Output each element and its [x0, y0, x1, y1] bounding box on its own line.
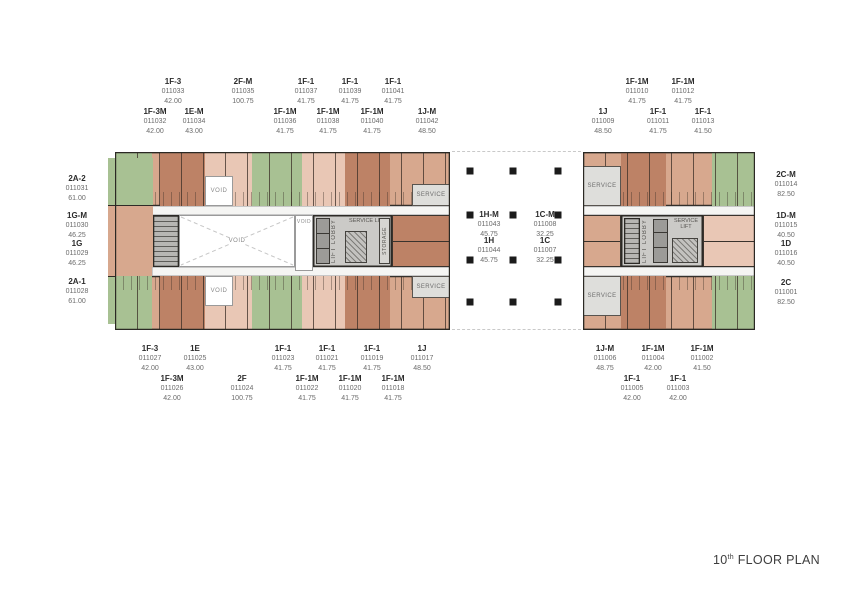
unit-type: 1E — [184, 344, 207, 354]
unit-block — [160, 152, 205, 206]
unit-area: 41.75 — [647, 127, 669, 137]
unit-number: 011008 — [534, 220, 557, 230]
unit-label-1j: 1J01100948.50 — [592, 107, 615, 137]
unit-area: 40.50 — [775, 259, 798, 269]
unit-area: 32.25 — [534, 256, 557, 266]
unit-type: 1F-1M — [641, 344, 664, 354]
unit-number: 011034 — [183, 117, 206, 127]
unit-number: 011004 — [641, 354, 664, 364]
unit-type: 2C — [775, 278, 798, 288]
unit-type: 1F-1M — [671, 77, 694, 87]
unit-number: 011011 — [647, 117, 669, 127]
unit-type: 1F-1M — [625, 77, 648, 87]
unit-number: 011035 — [232, 87, 255, 97]
unit-area: 41.50 — [692, 127, 715, 137]
void-room: VOID — [205, 176, 233, 206]
unit-area: 41.75 — [295, 394, 318, 404]
unit-label-1f-1m: 1F-1M01100241.50 — [690, 344, 713, 374]
left-wing-stair — [153, 215, 179, 267]
service-lift-label: SERVICE LIFT — [670, 218, 702, 230]
unit-number: 011010 — [625, 87, 648, 97]
unit-label-1f-3m: 1F-3M01102642.00 — [160, 374, 183, 404]
lift-shafts — [653, 219, 668, 263]
unit-area: 42.00 — [621, 394, 644, 404]
unit-number: 011023 — [272, 354, 295, 364]
unit-type: 1F-1 — [295, 77, 318, 87]
unit-number: 011041 — [382, 87, 405, 97]
unit-block — [160, 276, 205, 330]
core-stair — [624, 218, 640, 264]
unit-label-2f: 2F011024100.75 — [231, 374, 254, 404]
unit-number: 011027 — [139, 354, 162, 364]
unit-type: 2C-M — [775, 170, 798, 180]
unit-number: 011043 — [478, 220, 501, 230]
unit-area: 41.50 — [690, 364, 713, 374]
unit-type: 1F-1M — [316, 107, 339, 117]
unit-type: 1J-M — [594, 344, 617, 354]
unit-label-1f-1m: 1F-1M01103841.75 — [316, 107, 339, 137]
unit-label-1f-1m: 1F-1M01104041.75 — [360, 107, 383, 137]
unit-type: 1F-1M — [690, 344, 713, 354]
unit-area: 41.75 — [361, 364, 384, 374]
unit-number: 011001 — [775, 288, 798, 298]
lift-lobby-label: LIFT LOBBY — [642, 217, 648, 265]
unit-label-1h: 1H01104445.75 — [478, 236, 501, 266]
unit-area: 42.00 — [162, 97, 185, 107]
unit-type: 1F-3M — [143, 107, 166, 117]
unit-area: 41.75 — [338, 394, 361, 404]
unit-number: 011025 — [184, 354, 207, 364]
unit-area: 41.75 — [625, 97, 648, 107]
unit-number: 011003 — [667, 384, 690, 394]
unit-block — [252, 152, 302, 206]
unit-type: 2A-2 — [66, 174, 89, 184]
unit-type: 1C-M — [534, 210, 557, 220]
unit-number: 011039 — [339, 87, 362, 97]
unit-number: 011026 — [160, 384, 183, 394]
unit-divider — [392, 241, 450, 242]
unit-divider — [703, 241, 755, 242]
unit-type: 1D-M — [775, 211, 798, 221]
void-label: VOID — [211, 288, 228, 294]
unit-number: 011028 — [66, 287, 89, 297]
unit-label-1j: 1J01101748.50 — [411, 344, 434, 374]
unit-number: 011033 — [162, 87, 185, 97]
unit-label-1f-1m: 1F-1M01102241.75 — [295, 374, 318, 404]
unit-type: 1F-1M — [381, 374, 404, 384]
courtyard-boundary — [452, 151, 581, 152]
unit-area: 42.00 — [139, 364, 162, 374]
unit-area: 41.75 — [381, 394, 404, 404]
unit-number: 011014 — [775, 180, 798, 190]
service-label: SERVICE — [587, 293, 616, 299]
unit-type: 2F — [231, 374, 254, 384]
storage-label: STORAGE — [382, 227, 388, 255]
unit-number: 011016 — [775, 249, 798, 259]
unit-number: 011024 — [231, 384, 254, 394]
unit-label-1f-1m: 1F-1M01101841.75 — [381, 374, 404, 404]
unit-area: 43.00 — [183, 127, 206, 137]
service-room: SERVICE — [412, 184, 450, 206]
void-room: VOID — [205, 276, 233, 306]
unit-area: 48.50 — [592, 127, 615, 137]
unit-area: 48.75 — [594, 364, 617, 374]
unit-block — [712, 276, 755, 330]
unit-label-1f-1: 1F-101103941.75 — [339, 77, 362, 107]
unit-type: 1H-M — [478, 210, 501, 220]
void-label: VOID — [297, 219, 311, 225]
unit-label-1e-m: 1E-M01103443.00 — [183, 107, 206, 137]
unit-number: 011021 — [316, 354, 339, 364]
unit-label-2c-m: 2C-M01101482.50 — [775, 170, 798, 200]
unit-type: 1F-3 — [139, 344, 162, 354]
right-wing-bottom-corridor — [583, 267, 755, 276]
unit-label-1f-1: 1F-101101941.75 — [361, 344, 384, 374]
unit-label-1f-1m: 1F-1M01101041.75 — [625, 77, 648, 107]
void-shaft: VOID — [295, 215, 313, 271]
unit-label-1d-m: 1D-M01101540.50 — [775, 211, 798, 241]
unit-type: 1F-1 — [272, 344, 295, 354]
unit-label-1e: 1E01102543.00 — [184, 344, 207, 374]
unit-label-1c: 1C01100732.25 — [534, 236, 557, 266]
unit-number: 011037 — [295, 87, 318, 97]
unit-number: 011032 — [143, 117, 166, 127]
unit-type: 1G-M — [66, 211, 89, 221]
unit-type: 1C — [534, 236, 557, 246]
courtyard-boundary — [452, 329, 581, 330]
unit-type: 1F-1M — [273, 107, 296, 117]
left-wing-top-corridor — [152, 206, 450, 215]
unit-type: 1F-1M — [360, 107, 383, 117]
unit-type: 1F-1 — [316, 344, 339, 354]
unit-label-1f-3: 1F-301103342.00 — [162, 77, 185, 107]
unit-area: 100.75 — [231, 394, 254, 404]
unit-area: 41.75 — [382, 97, 405, 107]
unit-number: 011020 — [338, 384, 361, 394]
unit-area: 42.00 — [160, 394, 183, 404]
unit-area: 82.50 — [775, 190, 798, 200]
unit-area: 46.25 — [66, 259, 89, 269]
unit-area: 48.50 — [411, 364, 434, 374]
unit-area: 41.75 — [295, 97, 318, 107]
unit-area: 41.75 — [273, 127, 296, 137]
lift-shafts — [316, 218, 330, 264]
unit-area: 61.00 — [66, 297, 89, 307]
unit-type: 1F-3 — [162, 77, 185, 87]
unit-type: 2F-M — [232, 77, 255, 87]
unit-number: 011017 — [411, 354, 434, 364]
right-wing-top-corridor — [583, 206, 755, 215]
unit-number: 011022 — [295, 384, 318, 394]
unit-area: 100.75 — [232, 97, 255, 107]
storage-room: STORAGE — [379, 218, 390, 264]
unit-number: 011002 — [690, 354, 713, 364]
unit-block — [345, 152, 390, 206]
unit-number: 011015 — [775, 221, 798, 231]
unit-area: 41.75 — [272, 364, 295, 374]
unit-area: 48.50 — [416, 127, 439, 137]
unit-type: 1F-1 — [382, 77, 405, 87]
service-room: SERVICE — [583, 276, 621, 316]
unit-label-1f-1: 1F-101101341.50 — [692, 107, 715, 137]
unit-label-1f-1: 1F-101104141.75 — [382, 77, 405, 107]
left-wing-core: LIFT LOBBY SERVICE LIFT STORAGE — [313, 215, 392, 267]
unit-type: 1G — [66, 239, 89, 249]
unit-label-1f-1: 1F-101103741.75 — [295, 77, 318, 107]
service-room: SERVICE — [412, 276, 450, 298]
unit-block — [302, 276, 345, 330]
unit-block — [345, 276, 390, 330]
unit-label-1f-1m: 1F-1M01103641.75 — [273, 107, 296, 137]
unit-label-1f-1: 1F-101100542.00 — [621, 374, 644, 404]
unit-block — [115, 276, 152, 330]
unit-label-1f-1: 1F-101100342.00 — [667, 374, 690, 404]
right-wing-core: LIFT LOBBY SERVICE LIFT — [621, 215, 703, 267]
unit-block — [621, 152, 666, 206]
column-marker — [510, 212, 517, 219]
column-marker — [510, 257, 517, 264]
column-marker — [467, 168, 474, 175]
unit-label-1g: 1G01102946.25 — [66, 239, 89, 269]
unit-area: 41.75 — [316, 364, 339, 374]
unit-number: 011018 — [381, 384, 404, 394]
unit-block — [252, 276, 302, 330]
unit-type: 1F-1 — [361, 344, 384, 354]
unit-block — [108, 205, 153, 277]
unit-type: 1E-M — [183, 107, 206, 117]
unit-type: 1J — [592, 107, 615, 117]
void-label: VOID — [227, 238, 248, 244]
service-label: SERVICE — [587, 183, 616, 189]
left-wing-top-units — [115, 152, 450, 206]
unit-label-1j-m: 1J-M01104248.50 — [416, 107, 439, 137]
unit-type: 1F-1M — [295, 374, 318, 384]
unit-type: 1F-1 — [647, 107, 669, 117]
unit-number: 011036 — [273, 117, 296, 127]
unit-label-2c: 2C01100182.50 — [775, 278, 798, 308]
unit-number: 011005 — [621, 384, 644, 394]
unit-type: 1D — [775, 239, 798, 249]
column-marker — [510, 168, 517, 175]
unit-number: 011030 — [66, 221, 89, 231]
plan-title-text: FLOOR PLAN — [734, 553, 820, 567]
unit-area: 41.75 — [339, 97, 362, 107]
column-marker — [467, 212, 474, 219]
unit-area: 41.75 — [360, 127, 383, 137]
unit-label-1f-1m: 1F-1M01101241.75 — [671, 77, 694, 107]
unit-area: 42.00 — [641, 364, 664, 374]
unit-divider — [583, 241, 621, 242]
unit-area: 61.00 — [66, 194, 89, 204]
mid-units — [583, 215, 621, 267]
service-label: SERVICE — [416, 192, 445, 198]
unit-label-1d: 1D01101640.50 — [775, 239, 798, 269]
unit-label-1f-3m: 1F-3M01103242.00 — [143, 107, 166, 137]
mid-units — [703, 215, 755, 267]
lift-lobby-label: LIFT LOBBY — [331, 217, 337, 265]
unit-area: 41.75 — [316, 127, 339, 137]
unit-type: 1H — [478, 236, 501, 246]
unit-number: 011038 — [316, 117, 339, 127]
unit-area: 82.50 — [775, 298, 798, 308]
unit-label-1f-1m: 1F-1M01100442.00 — [641, 344, 664, 374]
unit-number: 011013 — [692, 117, 715, 127]
unit-number: 011040 — [360, 117, 383, 127]
unit-area: 42.00 — [143, 127, 166, 137]
unit-label-1g-m: 1G-M01103046.25 — [66, 211, 89, 241]
plan-title: 10th FLOOR PLAN — [713, 553, 820, 567]
unit-block — [621, 276, 666, 330]
unit-number: 011007 — [534, 246, 557, 256]
unit-block — [108, 158, 153, 205]
unit-area: 45.75 — [478, 256, 501, 266]
unit-number: 011031 — [66, 184, 89, 194]
unit-type: 1F-3M — [160, 374, 183, 384]
column-marker — [467, 257, 474, 264]
unit-label-2a-1: 2A-101102861.00 — [66, 277, 89, 307]
unit-number: 011012 — [671, 87, 694, 97]
left-wing-bottom-units — [115, 276, 450, 330]
unit-label-1f-1: 1F-101101141.75 — [647, 107, 669, 137]
unit-type: 1F-1 — [621, 374, 644, 384]
unit-label-1f-1: 1F-101102341.75 — [272, 344, 295, 374]
unit-number: 011042 — [416, 117, 439, 127]
unit-area: 41.75 — [671, 97, 694, 107]
unit-label-1f-1m: 1F-1M01102041.75 — [338, 374, 361, 404]
column-marker — [467, 299, 474, 306]
unit-block — [302, 152, 345, 206]
unit-label-1f-3: 1F-301102742.00 — [139, 344, 162, 374]
unit-label-2f-m: 2F-M011035100.75 — [232, 77, 255, 107]
unit-type: 1J-M — [416, 107, 439, 117]
unit-type: 1F-1 — [667, 374, 690, 384]
service-label: SERVICE — [416, 284, 445, 290]
mid-units — [392, 215, 450, 267]
unit-label-1j-m: 1J-M01100648.75 — [594, 344, 617, 374]
service-room: SERVICE — [583, 166, 621, 206]
unit-label-1f-1: 1F-101102141.75 — [316, 344, 339, 374]
unit-number: 011044 — [478, 246, 501, 256]
unit-number: 011006 — [594, 354, 617, 364]
unit-area: 42.00 — [667, 394, 690, 404]
unit-type: 1J — [411, 344, 434, 354]
floor-plan-page: VOID VOID VOID LIFT LOBBY SERVICE LIFT S… — [0, 0, 861, 609]
unit-type: 1F-1 — [339, 77, 362, 87]
core-stair — [345, 231, 367, 263]
void-label: VOID — [211, 188, 228, 194]
floor-number: 10 — [713, 553, 728, 567]
core-stair — [672, 238, 698, 263]
column-marker — [555, 299, 562, 306]
unit-type: 1F-1M — [338, 374, 361, 384]
unit-type: 1F-1 — [692, 107, 715, 117]
unit-type: 2A-1 — [66, 277, 89, 287]
atrium-void: VOID — [179, 215, 295, 267]
column-marker — [510, 299, 517, 306]
column-marker — [555, 168, 562, 175]
unit-area: 43.00 — [184, 364, 207, 374]
unit-number: 011009 — [592, 117, 615, 127]
unit-number: 011029 — [66, 249, 89, 259]
unit-label-2a-2: 2A-201103161.00 — [66, 174, 89, 204]
unit-number: 011019 — [361, 354, 384, 364]
unit-block — [712, 152, 755, 206]
